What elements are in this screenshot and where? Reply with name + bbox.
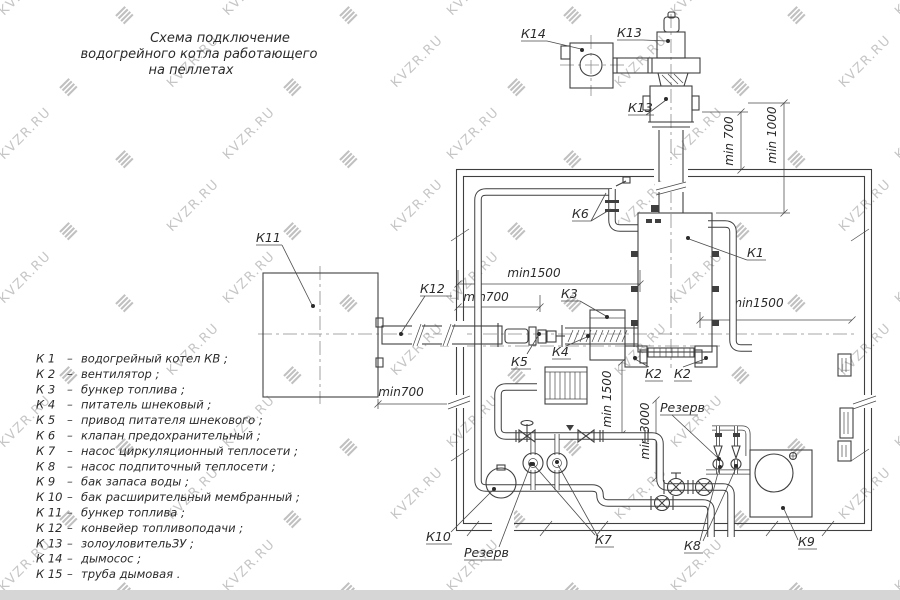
watermark-text: KVZR.RU — [164, 321, 222, 379]
callout-k9-label: К9 — [798, 534, 815, 549]
watermark-logo-icon — [340, 439, 357, 456]
callout-leader-line — [558, 465, 597, 535]
watermark-logo-icon — [788, 295, 805, 312]
watermark-logo-icon — [116, 7, 133, 24]
watermark-text: KVZR.RU — [892, 0, 900, 19]
schematic-sheet: KVZR.RUKVZR.RUKVZR.RUKVZR.RUKVZR.RUKVZR.… — [0, 0, 900, 600]
dimension-min700: min700 — [455, 290, 544, 312]
callout-k6-label: К6 — [572, 206, 589, 221]
legend-dash: – — [67, 382, 73, 396]
legend-item: К 2–вентилятор ; — [36, 367, 160, 381]
callout-leader-line — [499, 466, 530, 547]
legend-dash: – — [67, 444, 73, 458]
legend-item: К 6–клапан предохранительный ; — [36, 429, 261, 443]
watermark-logo-icon — [284, 511, 301, 528]
callout-k10: К10 — [426, 487, 496, 544]
callout-k2-right: К2 — [674, 356, 708, 381]
callout-target-dot — [718, 465, 722, 469]
watermark-text: KVZR.RU — [836, 33, 894, 91]
legend-item: К 13–золоуловительЗУ ; — [36, 536, 194, 550]
callout-k4: К4 — [552, 334, 590, 359]
callout-k2-right-label: К2 — [674, 366, 691, 381]
callout-target-dot — [781, 506, 785, 510]
callout-k4-label: К4 — [552, 344, 569, 359]
legend-key: К 2 — [36, 367, 55, 381]
callout-leader-line — [282, 245, 312, 305]
watermark-text: KVZR.RU — [220, 537, 278, 595]
watermark-logo-icon — [788, 151, 805, 168]
watermark-logo-icon — [340, 295, 357, 312]
legend-desc: труба дымовая . — [81, 567, 180, 581]
title-line-3: на пеллетах — [149, 63, 234, 78]
watermark-text: KVZR.RU — [444, 0, 502, 19]
callout-k12-label: К12 — [420, 281, 445, 296]
callout-target-dot — [531, 462, 535, 466]
callout-k1-label: К1 — [747, 245, 764, 260]
legend-desc: питатель шнековый ; — [81, 398, 211, 412]
callout-target-dot — [580, 48, 584, 52]
callout-k6: К6 — [572, 193, 611, 221]
watermark-text: KVZR.RU — [892, 105, 900, 163]
legend-item: К 8–насос подпиточный теплосети ; — [36, 459, 276, 473]
watermark-logo-icon — [116, 151, 133, 168]
dimension-label: min 700 — [722, 116, 736, 166]
drawing-title: Схема подключениеводогрейного котла рабо… — [81, 31, 318, 78]
legend-dash: – — [67, 367, 73, 381]
legend-desc: привод питателя шнекового ; — [81, 413, 263, 427]
dimension-label: min1500 — [730, 296, 784, 310]
legend-key: К 12 — [36, 521, 62, 535]
water-tank-k9 — [750, 450, 812, 517]
legend-desc: бак запаса воды ; — [81, 475, 189, 489]
callout-k7-label: К7 — [595, 532, 612, 547]
dimension-label: min700 — [463, 290, 509, 304]
legend-dash: – — [67, 552, 73, 566]
callout-target-dot — [311, 304, 315, 308]
legend-dash: – — [67, 536, 73, 550]
callout-target-dot — [399, 332, 403, 336]
watermark-logo-icon — [564, 7, 581, 24]
watermark-logo-icon — [340, 151, 357, 168]
legend-dash: – — [67, 398, 73, 412]
callout-k13-mid: К13 — [628, 97, 668, 115]
legend-desc: дымосос ; — [80, 552, 141, 566]
title-line-1: Схема подключение — [150, 31, 290, 46]
legend-key: К 8 — [36, 459, 55, 473]
legend-dash: – — [67, 475, 73, 489]
legend-desc: бак расширительный мембранный ; — [81, 490, 300, 504]
legend-desc: бункер топлива ; — [81, 506, 185, 520]
callout-target-dot — [686, 236, 690, 240]
legend-item: К 7–насос циркуляционный теплосети ; — [36, 444, 298, 458]
legend-dash: – — [67, 459, 73, 473]
legend-dash: – — [67, 490, 73, 504]
legend-key: К 1 — [36, 352, 55, 366]
callout-k14-label: К14 — [521, 26, 546, 41]
callout-target-dot — [633, 356, 637, 360]
legend-key: К 15 — [36, 567, 62, 581]
legend-dash: – — [67, 506, 73, 520]
service-ladder — [545, 367, 587, 404]
watermark-logo-icon — [60, 79, 77, 96]
screw-feeder-k4 — [562, 325, 638, 347]
callout-k8-label: К8 — [684, 538, 701, 553]
legend-item: К 12–конвейер топливоподачи ; — [36, 521, 243, 535]
watermark-text: KVZR.RU — [0, 105, 54, 163]
callout-target-dot — [586, 334, 590, 338]
callout-target-dot — [555, 460, 559, 464]
legend-desc: клапан предохранительный ; — [81, 429, 261, 443]
watermark-logo-icon — [284, 367, 301, 384]
legend-item: К 10–бак расширительный мембранный ; — [36, 490, 300, 504]
watermark-text: KVZR.RU — [388, 465, 446, 523]
legend-desc: насос подпиточный теплосети ; — [81, 459, 276, 473]
callout-target-dot — [734, 464, 738, 468]
watermark-text: KVZR.RU — [220, 249, 278, 307]
watermark-text: KVZR.RU — [164, 177, 222, 235]
dimension-label: min700 — [378, 385, 424, 399]
smoke-exhauster-k14 — [561, 43, 613, 88]
circulation-pumps-k7 — [516, 421, 648, 474]
dimension-min1500: min1500 — [697, 296, 856, 328]
legend-item: К 5–привод питателя шнекового ; — [36, 413, 263, 427]
watermark-logo-icon — [564, 151, 581, 168]
makeup-water-pipes — [706, 426, 750, 474]
legend-key: К 11 — [36, 506, 62, 520]
watermark-text: KVZR.RU — [892, 537, 900, 595]
callout-k3: К3 — [561, 286, 609, 319]
callout-target-dot — [704, 356, 708, 360]
dimension-label: min1500 — [507, 266, 561, 280]
watermark-logo-icon — [284, 223, 301, 240]
callout-k10-label: К10 — [426, 529, 451, 544]
watermark-text: KVZR.RU — [668, 249, 726, 307]
callout-target-dot — [717, 457, 721, 461]
legend-key: К 7 — [36, 444, 56, 458]
sheet-edge-band — [0, 590, 900, 600]
watermark-logo-icon — [732, 79, 749, 96]
watermark-logo-icon — [60, 223, 77, 240]
drawing-canvas: KVZR.RUKVZR.RUKVZR.RUKVZR.RUKVZR.RUKVZR.… — [0, 0, 900, 600]
legend-dash: – — [67, 413, 73, 427]
watermark-text: KVZR.RU — [836, 177, 894, 235]
callout-k14: К14 — [521, 26, 584, 52]
legend-key: К 3 — [36, 382, 55, 396]
legend-desc: золоуловительЗУ ; — [81, 536, 194, 550]
legend-key: К 13 — [36, 536, 62, 550]
legend-key: К 9 — [36, 475, 55, 489]
fuel-bunker-k11 — [263, 273, 383, 397]
legend-item: К 14–дымосос ; — [36, 552, 141, 566]
legend-key: К 5 — [36, 413, 55, 427]
legend-dash: – — [67, 352, 73, 366]
title-line-2: водогрейного котла работающего — [81, 47, 318, 62]
callout-k5-label: К5 — [511, 354, 528, 369]
pump-stub-pipes — [533, 434, 557, 490]
watermark-text: KVZR.RU — [668, 105, 726, 163]
callout-k1: К1 — [686, 236, 766, 260]
watermark-logo-icon — [732, 367, 749, 384]
callout-leader-line — [547, 41, 581, 49]
dimension-label: min 1000 — [765, 106, 779, 163]
callout-target-dot — [537, 332, 541, 336]
legend-dash: – — [67, 521, 73, 535]
watermark-logo-icon — [508, 79, 525, 96]
watermark-text: KVZR.RU — [612, 33, 670, 91]
callout-target-dot — [492, 487, 496, 491]
callout-rezerv-top-label: Резерв — [660, 400, 705, 415]
legend-item: К 1–водогрейный котел КВ ; — [36, 352, 228, 366]
legend-desc: конвейер топливоподачи ; — [81, 521, 243, 535]
legend-desc: насос циркуляционный теплосети ; — [81, 444, 298, 458]
watermark-text: KVZR.RU — [0, 0, 54, 19]
watermark-text: KVZR.RU — [220, 105, 278, 163]
callout-target-dot — [666, 39, 670, 43]
watermark-logo-icon — [508, 223, 525, 240]
watermark-logo-icon — [788, 7, 805, 24]
legend-key: К 6 — [36, 429, 55, 443]
callout-leader-line — [784, 509, 798, 540]
watermark-text: KVZR.RU — [388, 33, 446, 91]
watermark-text: KVZR.RU — [444, 105, 502, 163]
callout-leader-line — [534, 465, 595, 535]
watermark-logo-icon — [284, 79, 301, 96]
watermark-text: KVZR.RU — [892, 393, 900, 451]
watermark-text: KVZR.RU — [836, 465, 894, 523]
watermark-logo-icon — [116, 295, 133, 312]
legend-item: К 11–бункер топлива ; — [36, 506, 185, 520]
watermark-text: KVZR.RU — [220, 0, 278, 19]
callout-leader-line — [580, 301, 606, 316]
legend-item: К 15–труба дымовая . — [36, 567, 180, 581]
watermark-text: KVZR.RU — [0, 249, 54, 307]
dimension-label: min 1500 — [600, 370, 614, 427]
legend-desc: водогрейный котел КВ ; — [81, 352, 228, 366]
watermark-logo-icon — [340, 7, 357, 24]
watermark-text: KVZR.RU — [836, 321, 894, 379]
watermark-text: KVZR.RU — [892, 249, 900, 307]
callout-k3-label: К3 — [561, 286, 578, 301]
callout-target-dot — [605, 315, 609, 319]
dimension-min1500: min 1500 — [600, 359, 626, 438]
legend-dash: – — [67, 567, 73, 581]
callout-k13-top-label: К13 — [617, 25, 642, 40]
callout-k13-mid-label: К13 — [628, 100, 653, 115]
callout-leader-line — [451, 490, 493, 532]
feeder-drive-k5 — [505, 327, 565, 345]
legend-desc: вентилятор ; — [81, 367, 160, 381]
callout-k2-left-label: К2 — [645, 366, 662, 381]
watermark-text: KVZR.RU — [668, 0, 726, 19]
watermark-text: KVZR.RU — [388, 177, 446, 235]
callout-rezerv-bottom-label: Резерв — [464, 545, 509, 560]
legend-item: К 4–питатель шнековый ; — [36, 398, 211, 412]
legend-key: К 14 — [36, 552, 62, 566]
legend-desc: бункер топлива ; — [81, 382, 185, 396]
legend-item: К 3–бункер топлива ; — [36, 382, 185, 396]
legend-dash: – — [67, 429, 73, 443]
legend-item: К 9–бак запаса воды ; — [36, 475, 189, 489]
legend-key: К 4 — [36, 398, 55, 412]
legend-key: К 10 — [36, 490, 62, 504]
callout-target-dot — [664, 97, 668, 101]
dimensions-layer: min1500min700min1500min700min 700min 100… — [375, 100, 856, 482]
callout-k11-label: К11 — [256, 230, 281, 245]
